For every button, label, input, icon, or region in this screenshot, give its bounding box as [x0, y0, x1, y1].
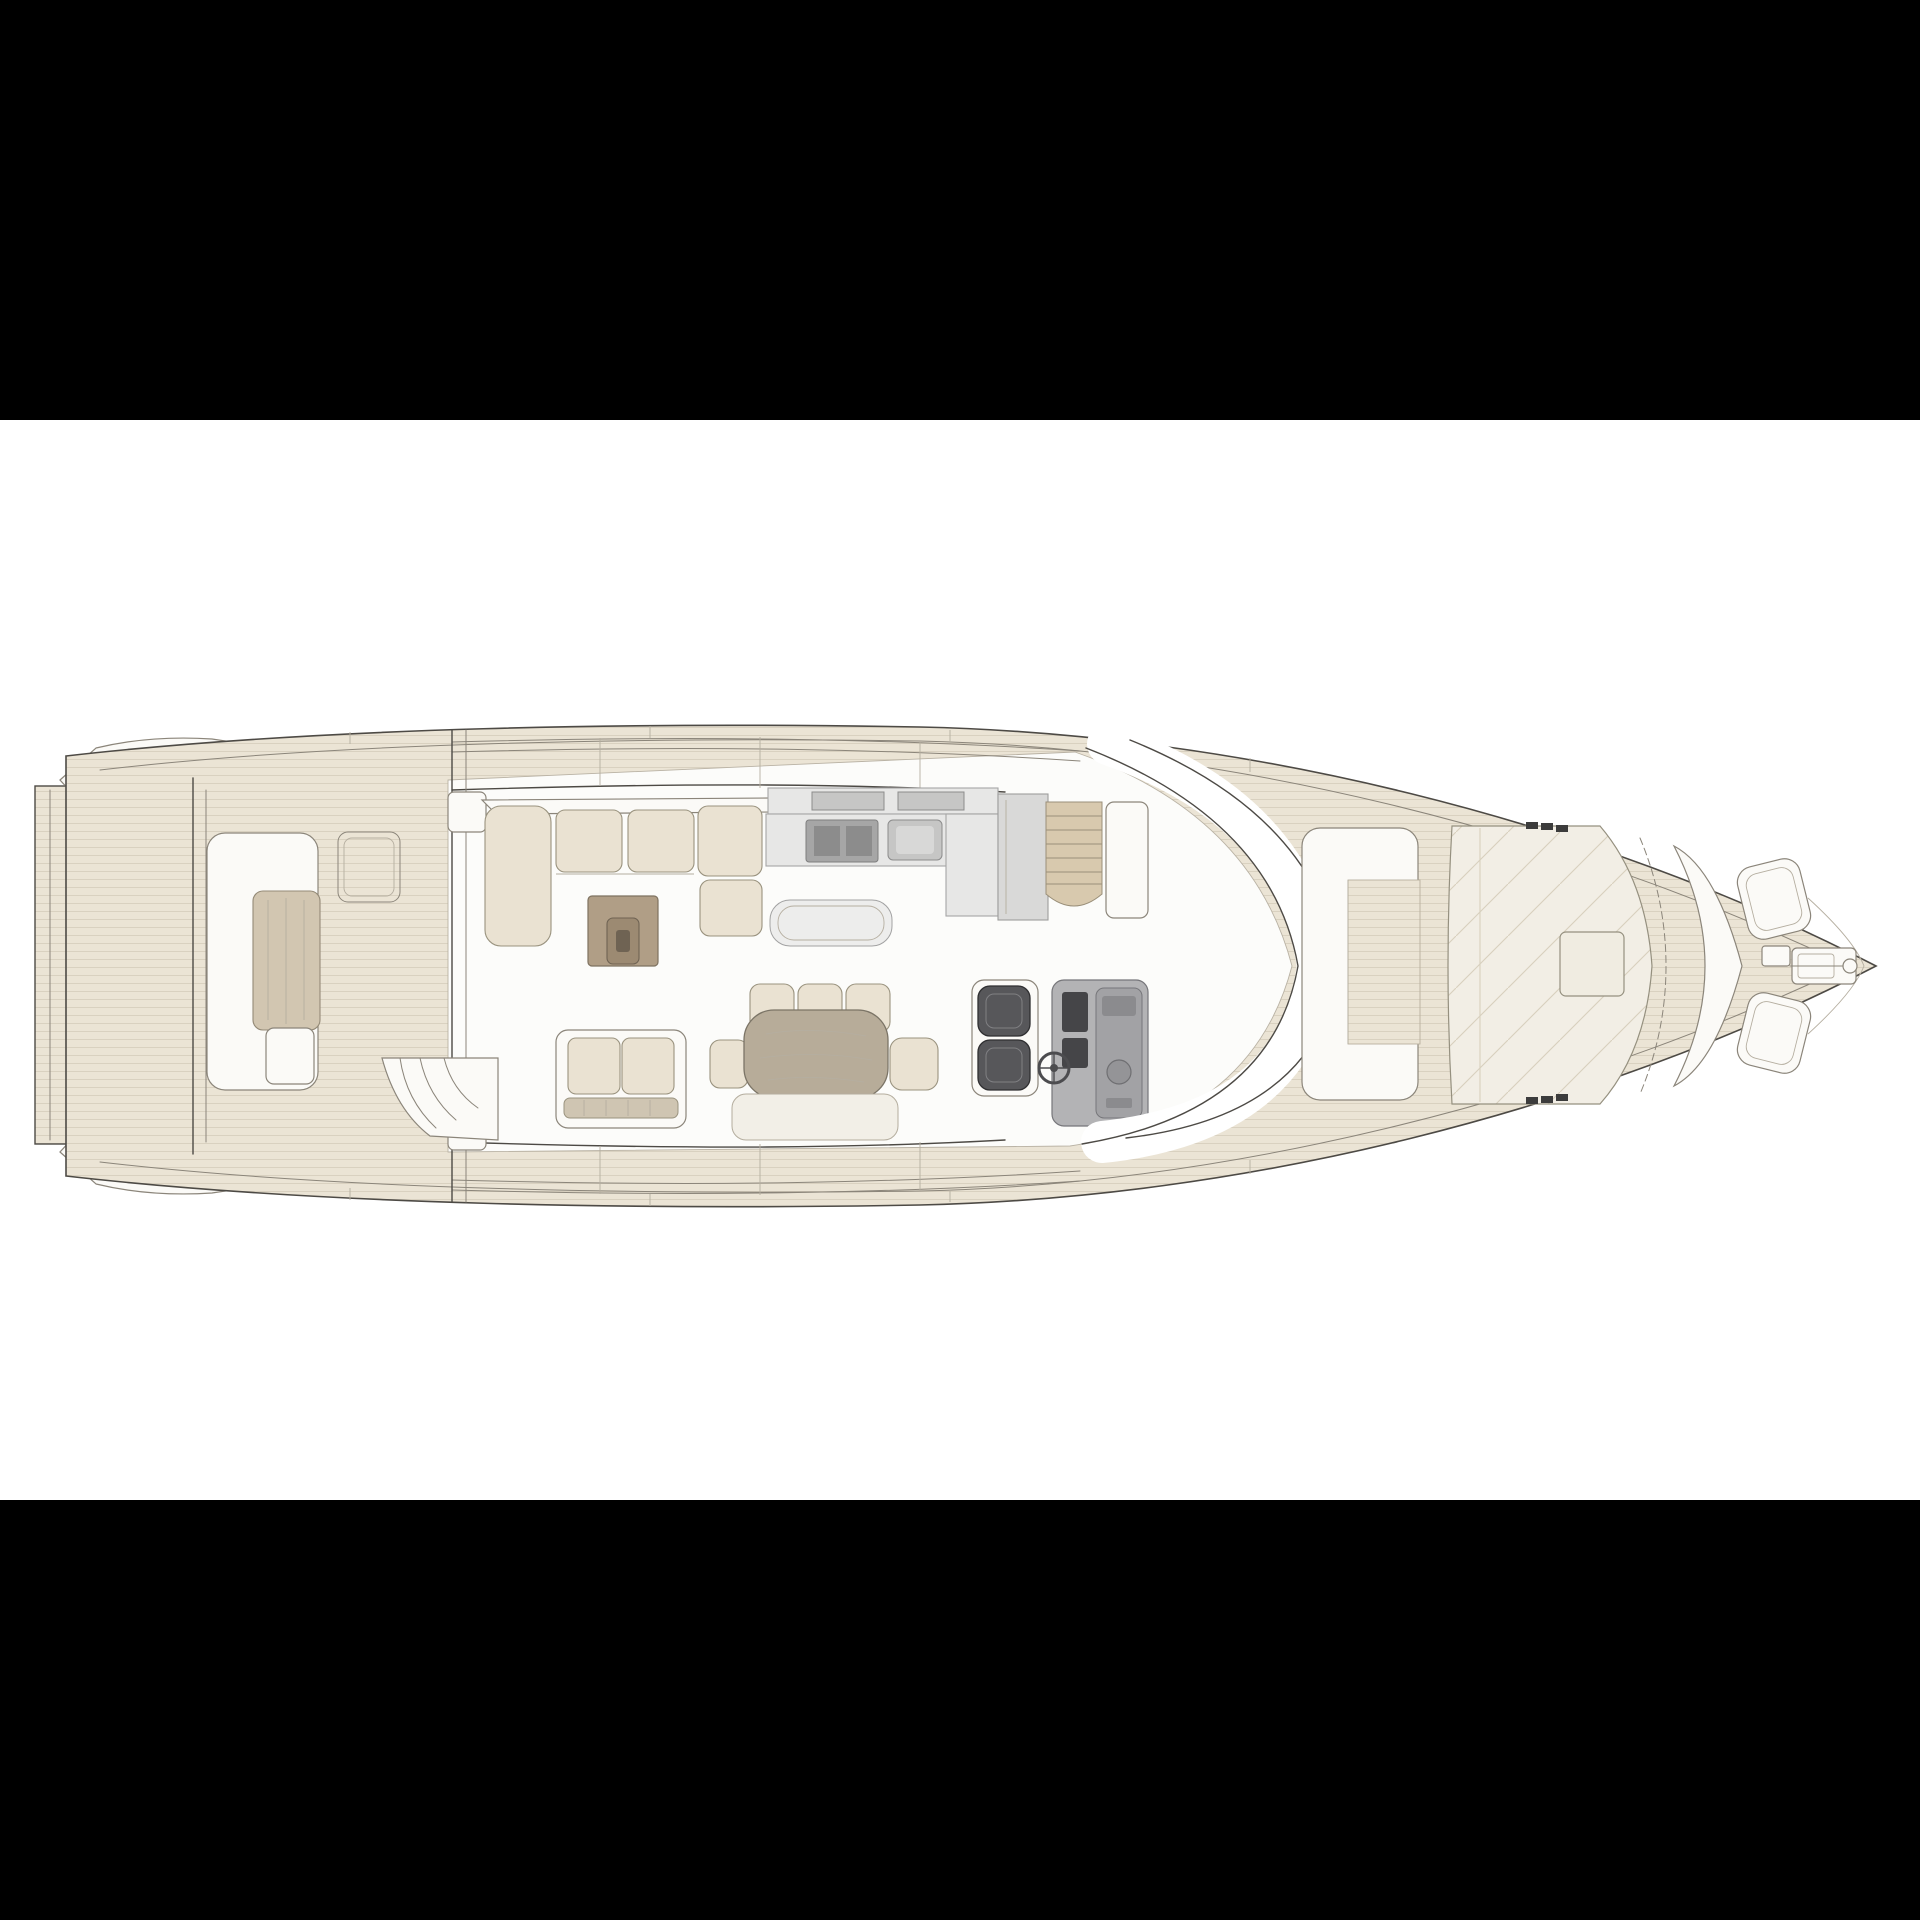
coffee-table — [588, 896, 658, 966]
loveseat-cushion — [568, 1038, 620, 1094]
galley-counter-forward — [946, 814, 998, 916]
sofa-chaise — [485, 806, 551, 946]
sunpad-cushion — [1560, 932, 1624, 996]
helm-screen — [1062, 1038, 1088, 1068]
sofa-corner-cushion — [698, 806, 762, 876]
dining-chair — [710, 1040, 748, 1088]
letterbox-bottom — [0, 1500, 1920, 1920]
screenshot-stage — [0, 0, 1920, 1920]
loveseat-cushion — [622, 1038, 674, 1094]
sofa-end-cushion — [700, 880, 762, 936]
anchor-roller — [1843, 959, 1857, 973]
helm-screen — [1062, 992, 1088, 1032]
loveseat-back-rail — [564, 1098, 678, 1118]
yacht-deck-plan — [0, 0, 1920, 1920]
dining-chair — [890, 1038, 938, 1090]
stair-surround — [1106, 802, 1148, 918]
sofa-back-cushion — [556, 810, 622, 872]
galley-appliance — [898, 792, 964, 810]
loveseat — [556, 1030, 686, 1128]
c-bench-footwell — [1348, 880, 1420, 1044]
dining-bench — [732, 1094, 898, 1140]
dining-table — [744, 1010, 888, 1098]
foredeck-lounge — [1302, 828, 1420, 1100]
aft-bench-cushion — [266, 1028, 314, 1084]
sofa-back-cushion — [628, 810, 694, 872]
galley-appliance — [812, 792, 884, 810]
steering-wheel — [1039, 1053, 1069, 1083]
aft-table — [253, 891, 320, 1030]
galley-tall-cabinet — [998, 794, 1048, 920]
pillar-base-port — [448, 792, 486, 832]
letterbox-top — [0, 0, 1920, 420]
